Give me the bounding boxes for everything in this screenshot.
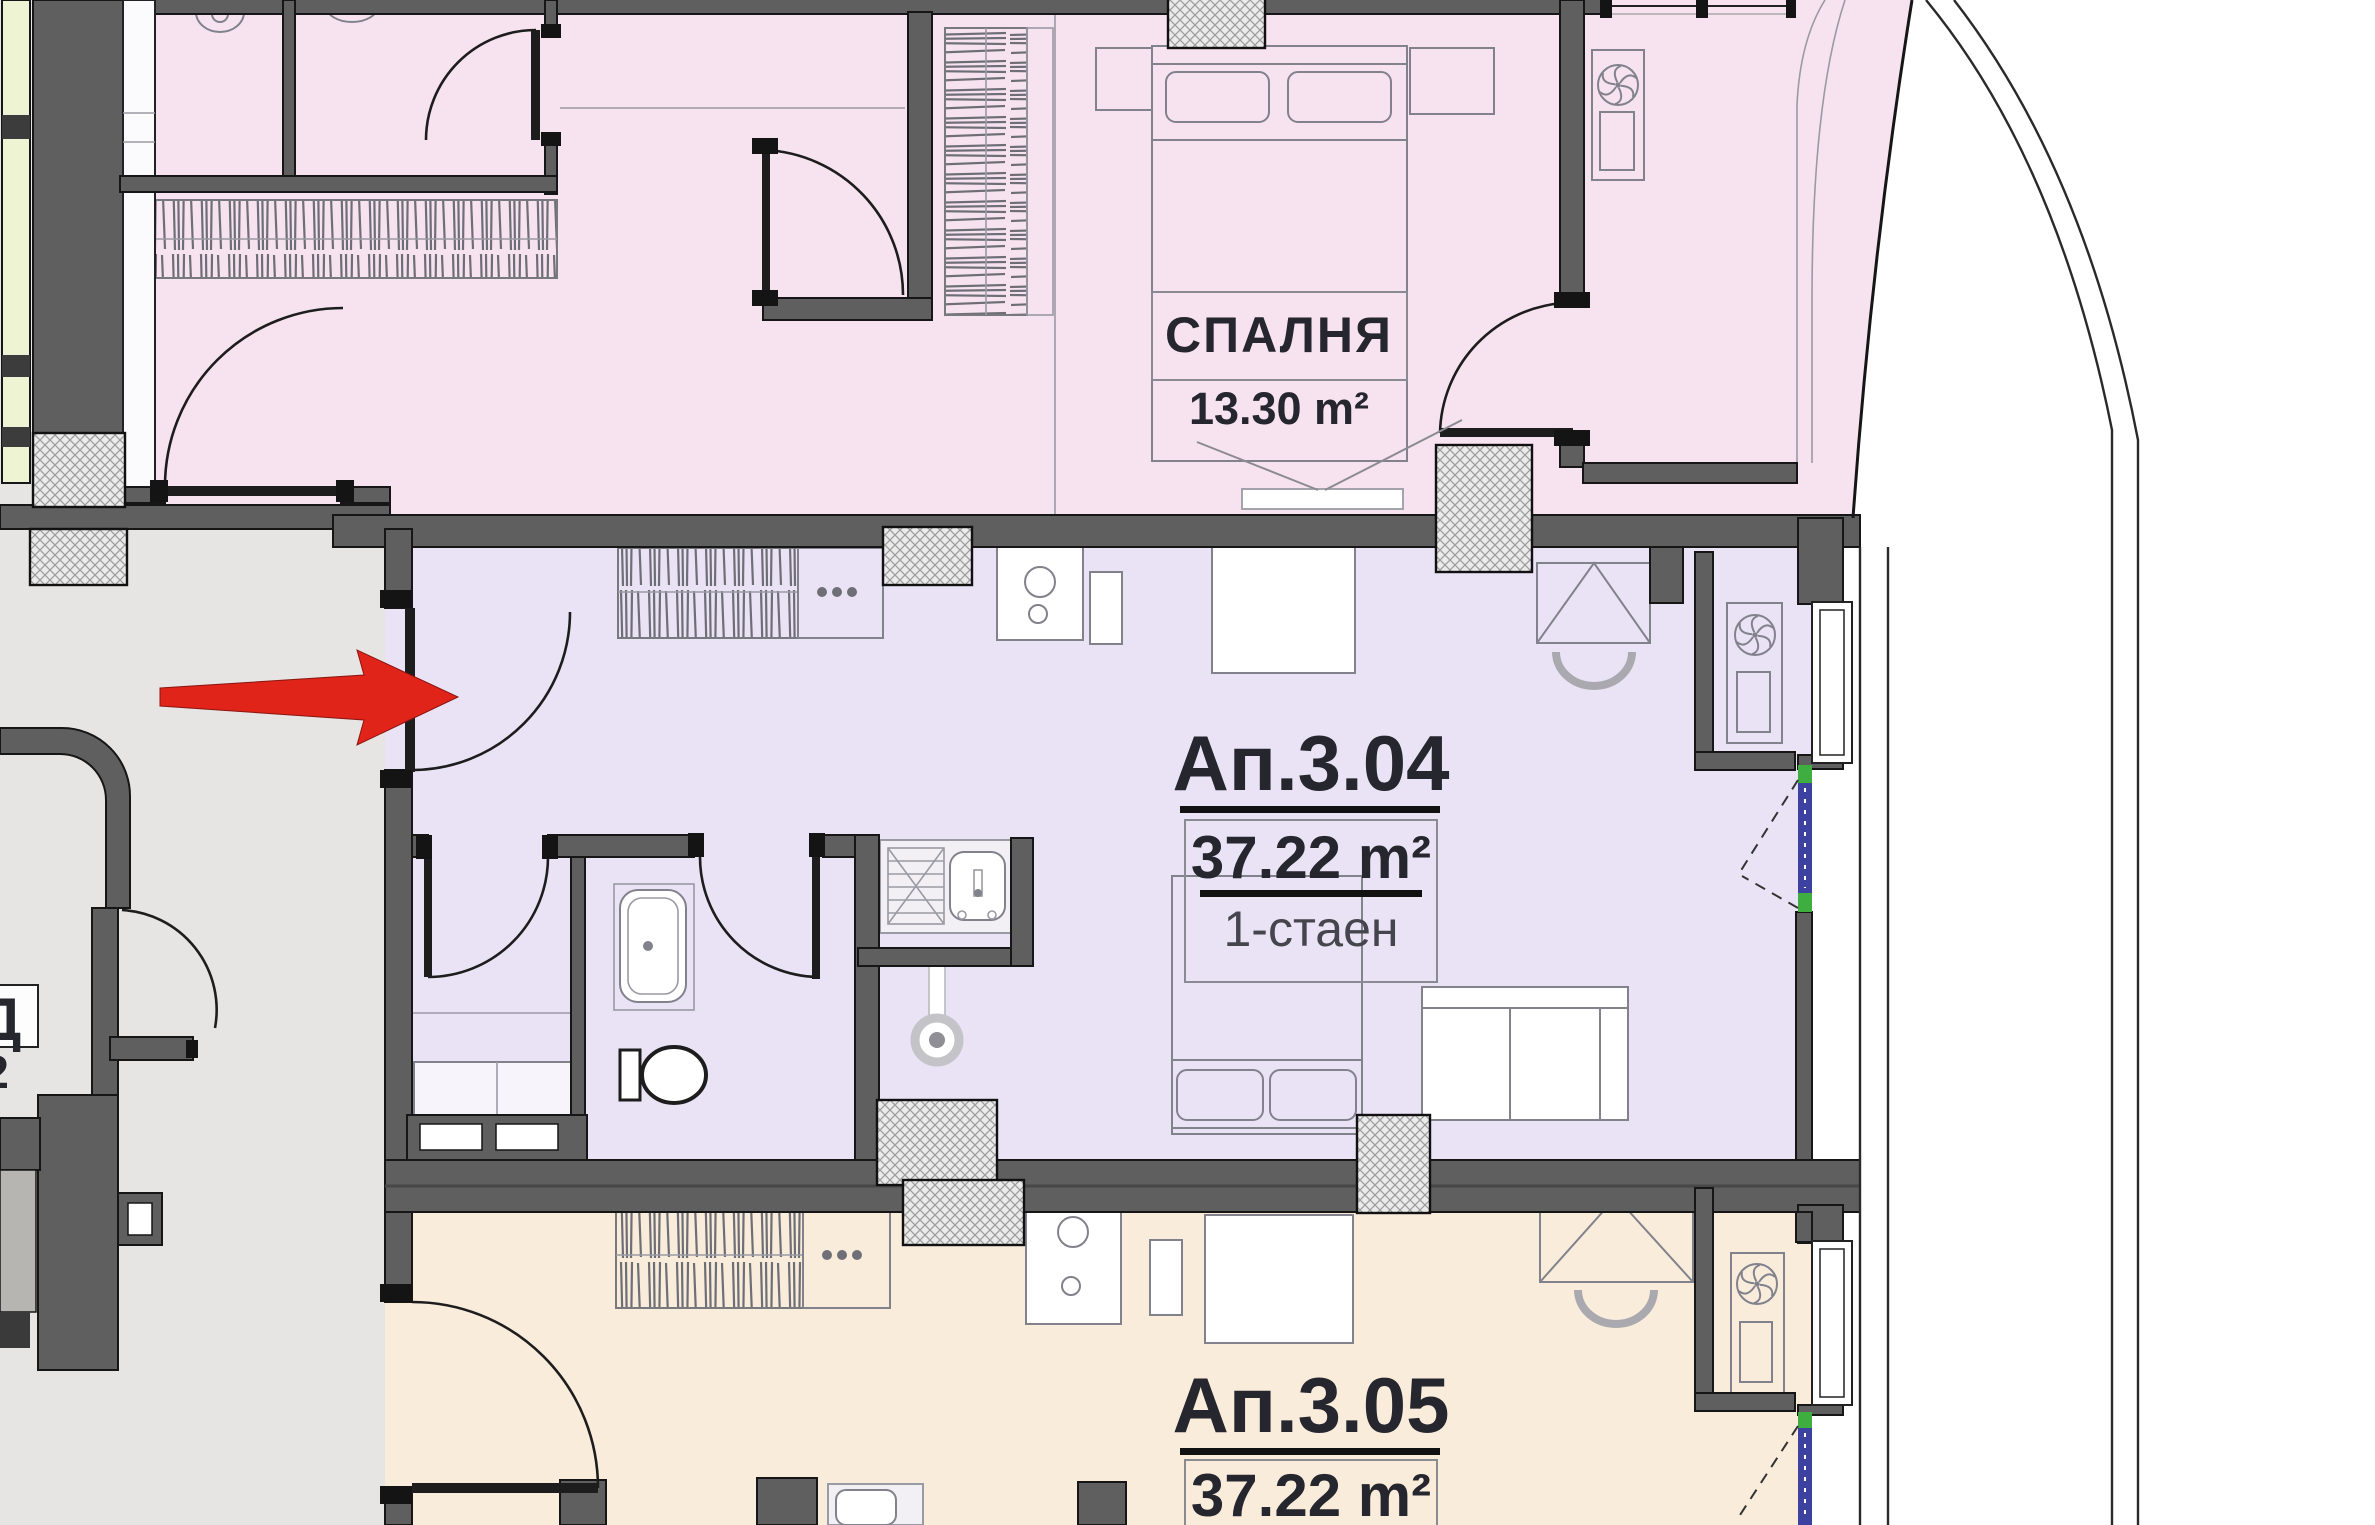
window [1812,602,1852,763]
closet-cabinet [414,1062,582,1115]
window [1812,1241,1852,1405]
handle-dot [852,1250,862,1260]
chair [1090,572,1122,644]
wardrobe-hatch [618,548,798,638]
bedroom-area-label: 13.30 m² [1189,383,1369,434]
facade-curve [1954,0,2138,1525]
window-band [2,0,30,483]
sofa [1422,987,1628,1120]
toilet-icon [620,1047,706,1103]
edge-partial-digit: 2 [0,1046,9,1098]
bathtub [614,884,694,1010]
window-sill [1242,489,1403,509]
apartment-304-type-label: 1-стаен [1223,901,1398,957]
apartment-305-id-label: Ап.3.05 [1173,1361,1450,1449]
stair-wall [38,1095,118,1370]
stove-icon [997,546,1083,640]
underline [1180,1448,1440,1455]
bathroom-sink-partial [828,1484,923,1525]
underline [1180,806,1440,813]
floor-plan: СПАЛНЯ 13.30 m² Ап.3.04 37.22 m² 1-стаен… [0,0,2375,1525]
handle-dot [832,587,842,597]
dining-table [1205,1215,1353,1343]
facade-curve [1926,0,2112,1525]
edge-partial-letter: Д [0,986,21,1053]
chair [1150,1240,1182,1315]
kitchen-sink [880,840,1012,933]
dining-table [1212,547,1355,673]
stove-icon [1026,1196,1121,1324]
apartment-304-area-label: 37.22 m² [1191,824,1431,891]
apartment-304-id-label: Ап.3.04 [1173,719,1450,807]
handle-dot [822,1250,832,1260]
bedroom-label: СПАЛНЯ [1165,307,1393,363]
underline [1200,890,1422,897]
handle-dot [837,1250,847,1260]
handle-dot [817,587,827,597]
handle-dot [847,587,857,597]
apartment-305-area-label: 37.22 m² [1191,1462,1431,1525]
